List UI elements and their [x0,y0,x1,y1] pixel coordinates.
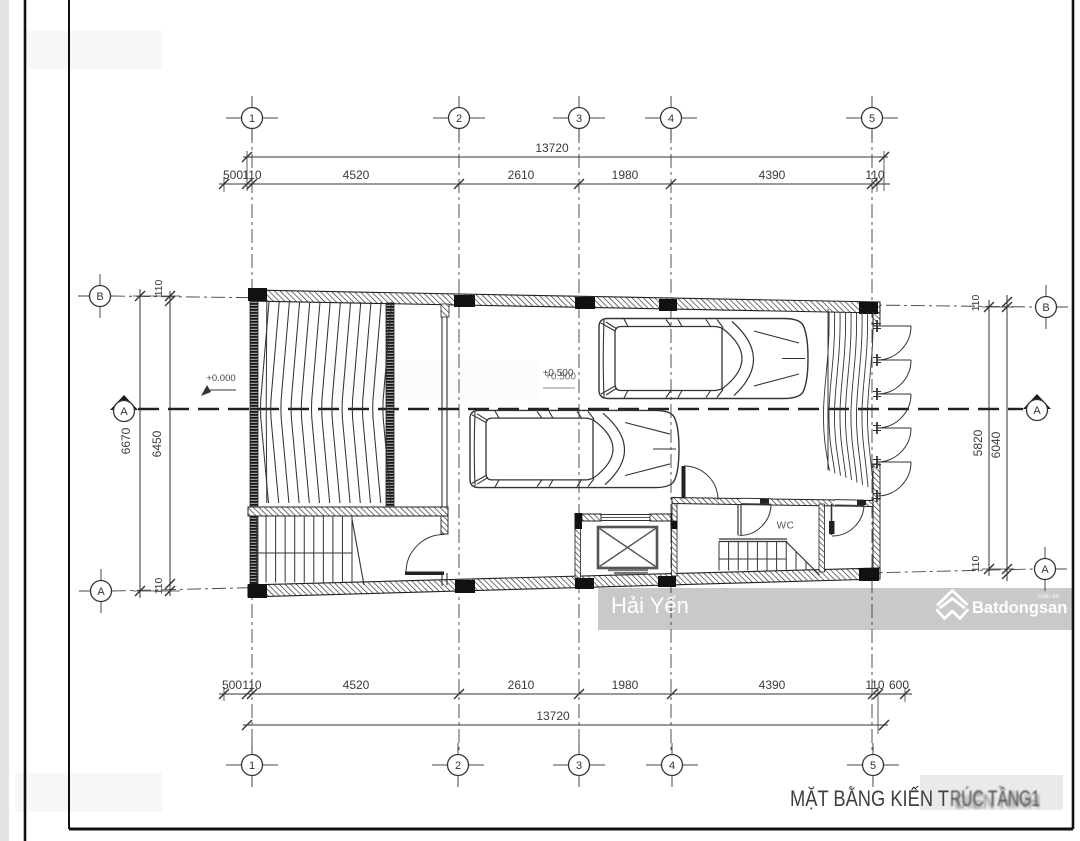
svg-text:110: 110 [242,168,261,182]
svg-text:B: B [1042,302,1049,314]
svg-text:110: 110 [970,555,982,572]
svg-text:B: B [96,291,103,303]
svg-text:1: 1 [249,113,255,125]
svg-text:+0.500: +0.500 [545,372,576,383]
svg-text:1980: 1980 [612,678,639,692]
svg-text:500: 500 [222,678,242,692]
svg-text:4390: 4390 [759,678,786,692]
svg-text:4520: 4520 [343,678,370,692]
svg-text:1: 1 [249,760,255,772]
svg-text:1980: 1980 [612,168,639,182]
svg-text:3: 3 [576,113,582,125]
svg-text:com.vn: com.vn [1038,593,1059,600]
svg-text:6670: 6670 [119,427,133,454]
svg-text:2: 2 [455,760,461,772]
svg-text:WC: WC [777,521,795,532]
svg-text:Batdongsan: Batdongsan [972,599,1067,617]
svg-text:A: A [1033,405,1041,417]
svg-text:4: 4 [669,760,675,772]
svg-text:3: 3 [576,760,582,772]
svg-text:MẶT BẰNG KIẾN T: MẶT BẰNG KIẾN T [790,786,949,811]
svg-text:ĐIỂN HÌNH: ĐIỂN HÌNH [955,791,1040,813]
svg-text:2610: 2610 [508,168,535,182]
svg-text:A: A [1041,564,1049,576]
svg-text:6450: 6450 [150,430,164,457]
svg-text:110: 110 [242,678,261,692]
svg-text:110: 110 [153,577,165,594]
svg-text:2610: 2610 [508,678,535,692]
svg-text:5820: 5820 [971,429,985,456]
svg-text:4: 4 [668,113,674,125]
svg-text:Hải Yến: Hải Yến [611,593,689,618]
svg-text:600: 600 [889,678,909,692]
svg-text:A: A [97,586,105,598]
svg-text:2: 2 [456,113,462,125]
svg-text:5: 5 [869,113,875,125]
svg-text:110: 110 [865,168,884,182]
svg-text:500: 500 [223,168,243,182]
svg-text:110: 110 [865,678,884,692]
svg-text:13720: 13720 [536,709,570,723]
svg-text:4390: 4390 [759,168,786,182]
svg-text:A: A [120,406,128,418]
svg-text:110: 110 [153,279,165,296]
svg-text:110: 110 [970,294,982,311]
svg-text:6040: 6040 [989,431,1003,458]
svg-text:5: 5 [870,760,876,772]
svg-text:13720: 13720 [535,141,569,155]
svg-text:+0.000: +0.000 [206,373,235,384]
svg-text:4520: 4520 [343,168,370,182]
